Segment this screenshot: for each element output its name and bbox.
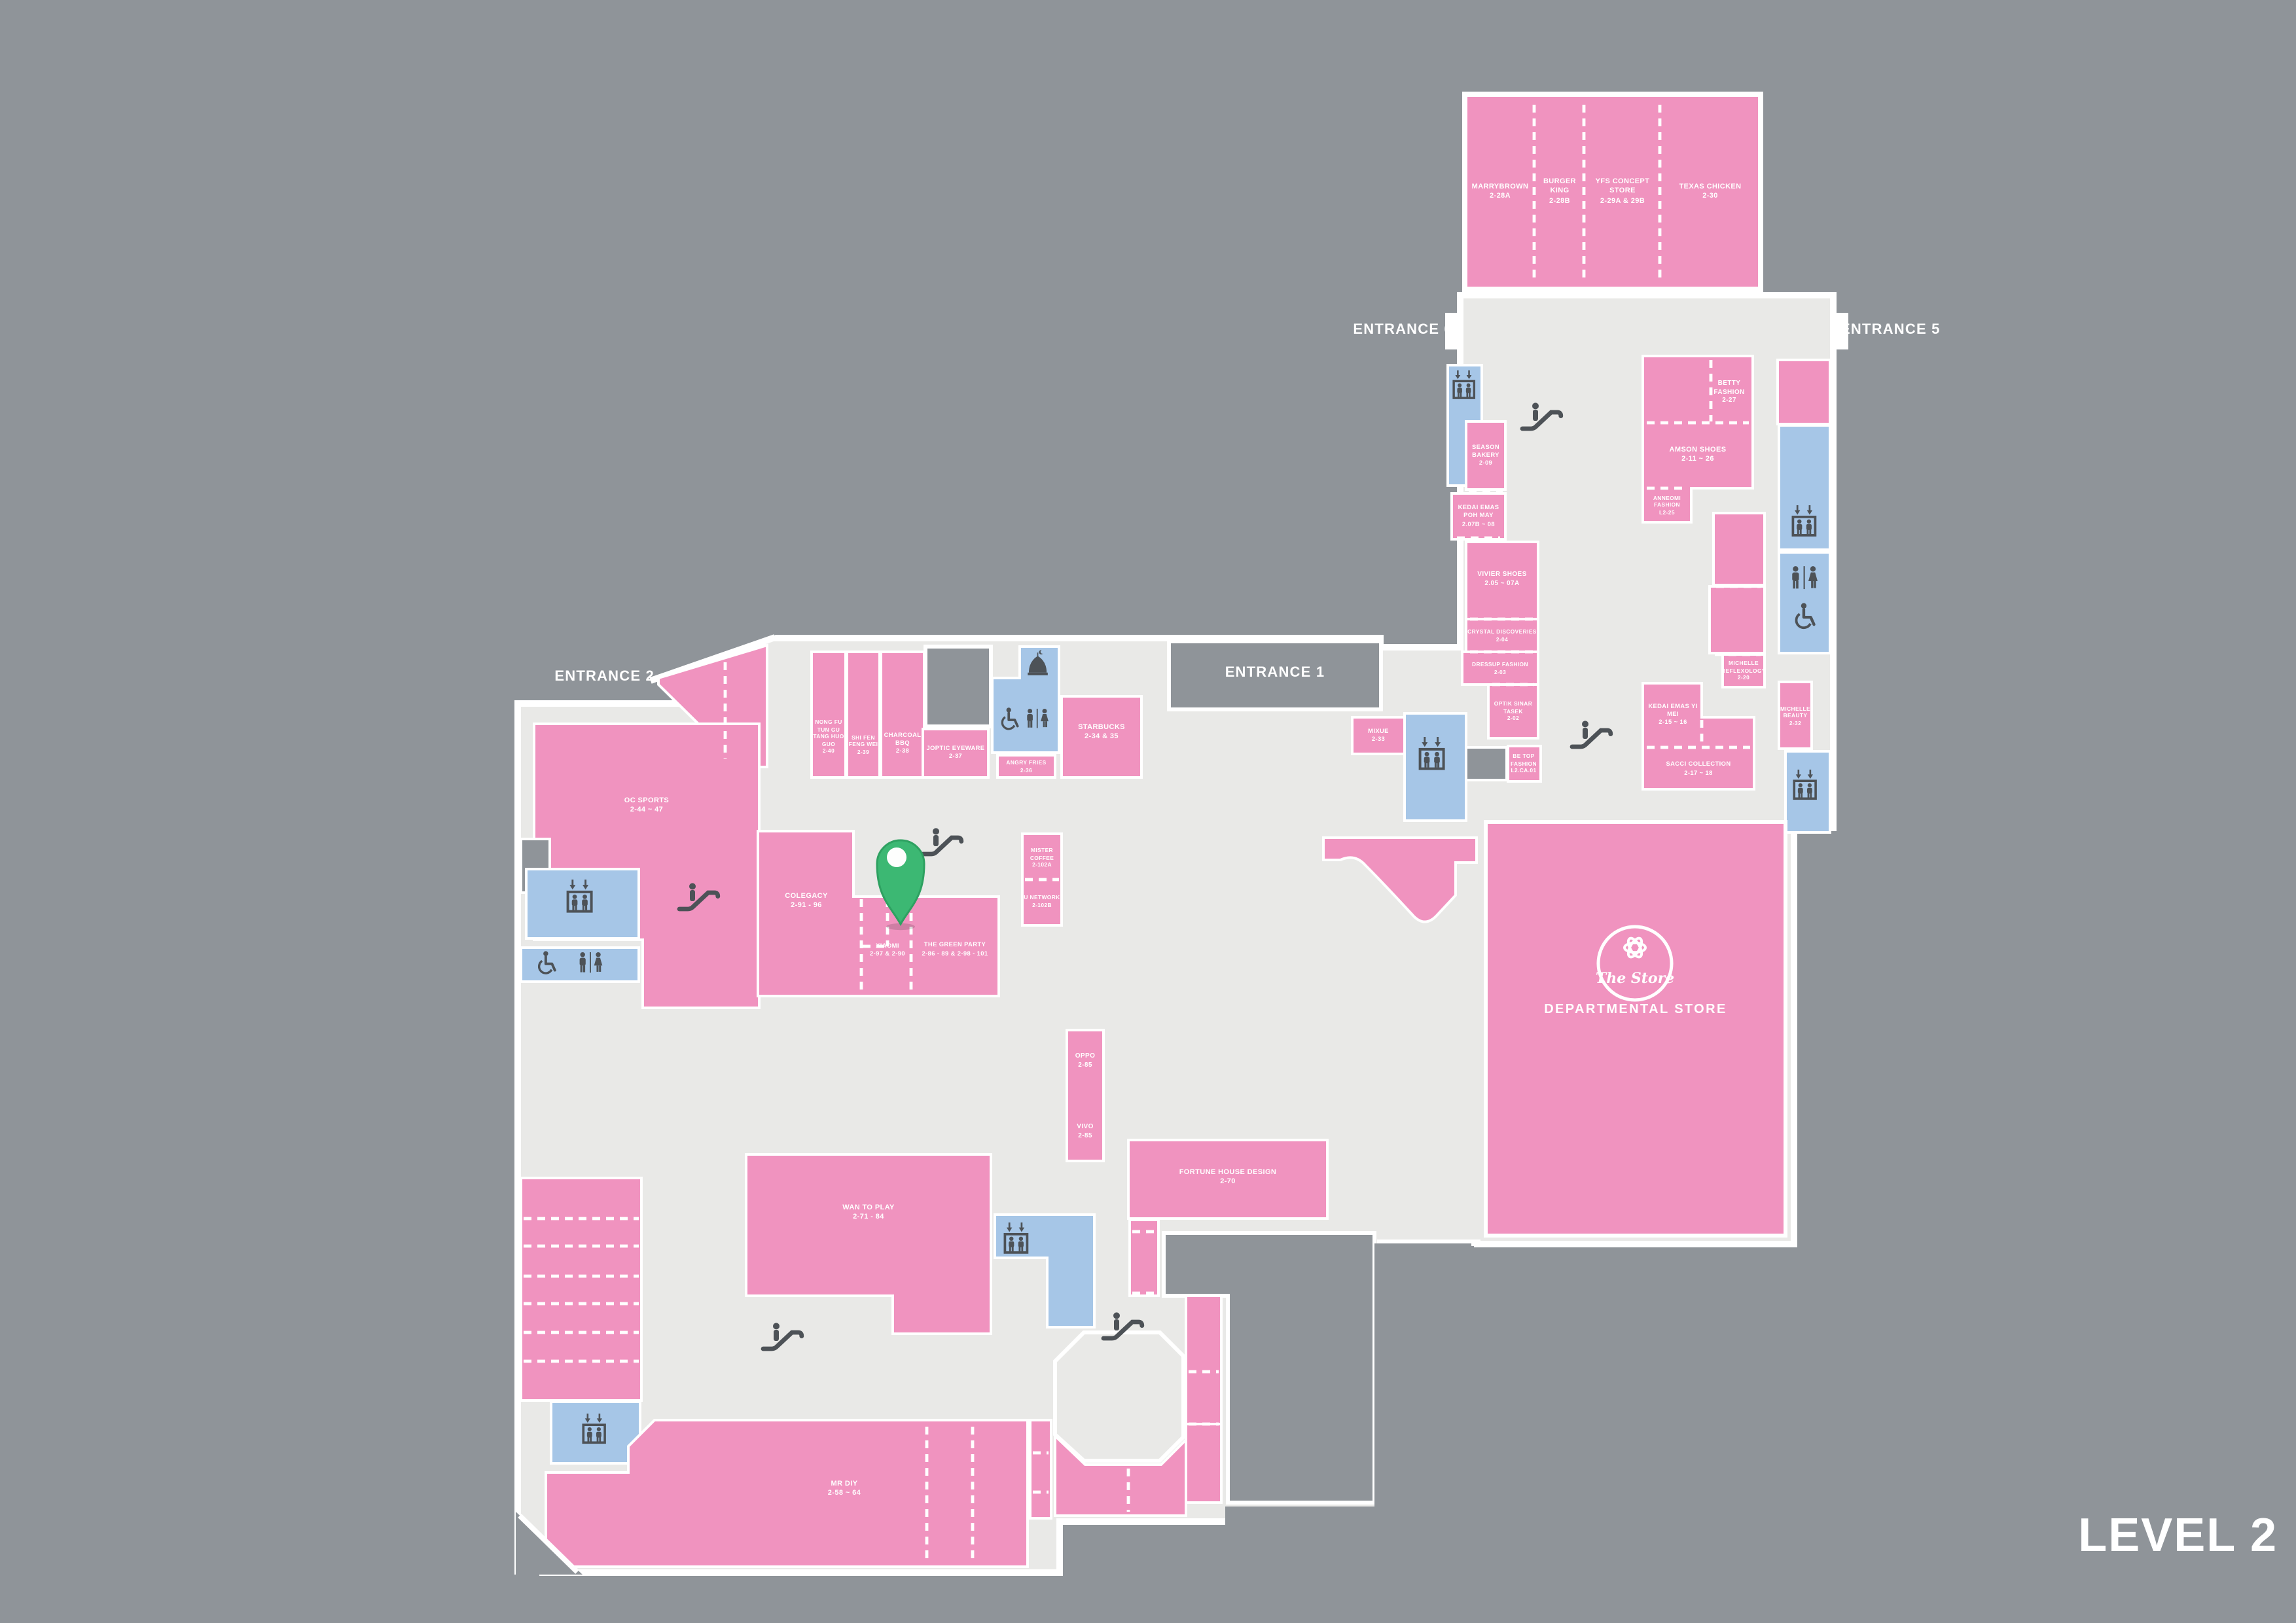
facility-block-surau-toilet[interactable] — [992, 678, 1059, 753]
store-label-fortune-house[interactable]: FORTUNE HOUSE DESIGN2-70 — [1131, 1157, 1325, 1199]
store-label-unetwork[interactable]: U NETWORK2-102B — [1022, 882, 1062, 921]
the-store-logo-text: The Store — [1596, 970, 1674, 987]
store-label-anneomi[interactable]: ANNEOMI FASHIONL2-25 — [1643, 490, 1691, 521]
entrance6-label: ENTRANCE 6 — [1348, 322, 1453, 338]
store-label-dressup[interactable]: DRESSUP FASHION2-03 — [1462, 653, 1538, 683]
store-label-michelle-reflexology[interactable]: MICHELLE REFLEXOLOGY2-20 — [1721, 656, 1766, 686]
store-label-joptic[interactable]: JOPTIC EYEWARE2-37 — [923, 733, 988, 772]
store-label-mixue[interactable]: MIXUE2-33 — [1352, 720, 1405, 751]
store-label-xiaomi[interactable]: XIAOMI2-97 & 2-90 — [864, 916, 911, 984]
store-label-mister-coffee[interactable]: MISTER COFFEE2-102A — [1022, 838, 1062, 878]
store-label-marrybrown[interactable]: MARRYBROWN2-28A — [1466, 98, 1534, 287]
facility-block-lift-upper-right[interactable] — [1779, 425, 1830, 550]
departmental-store-label: DEPARTMENTAL STORE — [1491, 1003, 1780, 1017]
store-label-sacci[interactable]: SACCI COLLECTION2-17 ~ 18 — [1645, 751, 1751, 787]
store-label-vivier[interactable]: VIVIER SHOES2.05 ~ 07A — [1466, 556, 1538, 603]
store-label-oc-sports[interactable]: OC SPORTS2-44 ~ 47 — [534, 783, 759, 830]
store-label-mr-diy[interactable]: MR DIY2-58 ~ 64 — [681, 1470, 1008, 1509]
store-label-amson[interactable]: AMSON SHOES2-11 ~ 26 — [1645, 436, 1750, 475]
store-label-optik[interactable]: OPTIK SINAR TASEK2-02 — [1488, 687, 1538, 736]
mall-map-viewport: The Store MARRYBROWN2-28A BURGER KING2-2… — [0, 0, 2296, 1623]
courtyard-floor — [1055, 1332, 1183, 1461]
store-label-green-party[interactable]: THE GREEN PARTY2-86 - 89 & 2-98 - 101 — [914, 914, 996, 986]
store-label-starbucks[interactable]: STARBUCKS2-34 & 35 — [1062, 707, 1141, 759]
store-label-nongfu[interactable]: NONG FU TUN GU TANG HUO GUO2-40 — [812, 700, 846, 774]
store-label-season-bakery[interactable]: SEASON BAKERY2-09 — [1466, 427, 1505, 484]
store-label-yfs[interactable]: YFS CONCEPT STORE2-29A & 29B — [1585, 98, 1660, 287]
store-block-unlabeled-2[interactable] — [1710, 586, 1765, 653]
store-label-kedai-poh-may[interactable]: KEDAI EMAS POH MAY2.07B ~ 08 — [1452, 496, 1505, 537]
exterior-patch-2 — [1374, 1243, 1471, 1518]
level-label: LEVEL 2 — [1911, 1508, 2278, 1563]
store-block-departmental-store[interactable] — [1486, 822, 1785, 1236]
store-label-shifen[interactable]: SHI FEN FENG WEI2-39 — [847, 717, 880, 772]
store-label-oppo[interactable]: OPPO2-85 — [1067, 1044, 1103, 1079]
store-block-strip-east-1[interactable] — [1186, 1296, 1221, 1424]
store-block-unlabeled-3[interactable] — [1778, 360, 1830, 424]
store-block-units-column[interactable] — [521, 1178, 641, 1400]
entrance1-label: ENTRANCE 1 — [1174, 665, 1376, 681]
floorplan-canvas: The Store — [0, 0, 2296, 1623]
entrance5-label: ENTRANCE 5 — [1840, 322, 1941, 338]
exterior-patch — [1225, 1507, 1385, 1585]
store-label-crystal[interactable]: CRYSTAL DISCOVERIES2-04 — [1466, 620, 1538, 651]
store-label-betop[interactable]: BE TOP FASHIONL2.CA.01 — [1507, 747, 1541, 780]
entrance2-label: ENTRANCE 2 — [545, 669, 655, 685]
store-label-texas-chicken[interactable]: TEXAS CHICKEN2-30 — [1661, 98, 1759, 287]
store-label-burger-king[interactable]: BURGER KING2-28B — [1535, 98, 1584, 287]
store-label-colegacy[interactable]: COLEGACY2-91 - 96 — [761, 880, 852, 924]
service-void-gray — [925, 647, 991, 726]
store-label-michelle-beauty[interactable]: MICHELLE BEAUTY2-32 — [1779, 691, 1812, 741]
store-block-strip-mrdiy[interactable] — [1030, 1420, 1051, 1518]
store-label-betty[interactable]: BETTY FASHION2-27 — [1708, 366, 1750, 419]
store-label-charcoal[interactable]: CHARCOAL BBQ2-38 — [881, 715, 924, 772]
store-block-strip-east-2[interactable] — [1186, 1424, 1221, 1503]
store-label-wan-to-play[interactable]: WAN TO PLAY2-71 - 84 — [749, 1194, 988, 1233]
store-label-vivo[interactable]: VIVO2-85 — [1067, 1115, 1103, 1149]
store-label-yimei[interactable]: KEDAI EMAS YI MEI2-15 ~ 16 — [1644, 688, 1702, 741]
facility-block-lift-southwest[interactable] — [551, 1402, 640, 1463]
store-label-angry-fries[interactable]: ANGRY FRIES2-36 — [997, 755, 1055, 777]
store-block-unlabeled-1[interactable] — [1713, 513, 1765, 585]
service-block-gray — [1463, 747, 1507, 780]
